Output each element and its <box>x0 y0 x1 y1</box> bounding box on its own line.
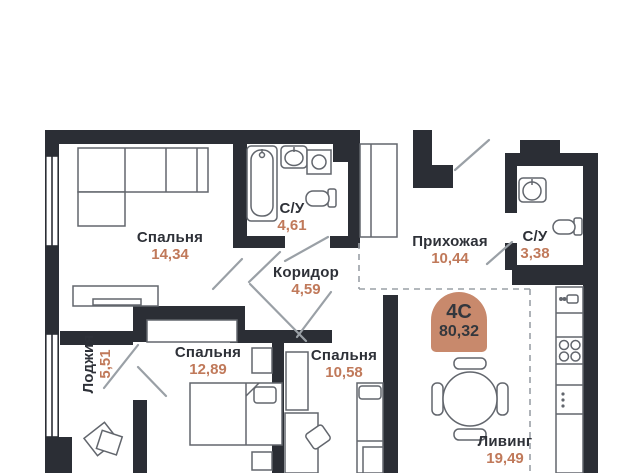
loggia-chair <box>84 422 122 455</box>
chair-top <box>454 358 486 369</box>
dresser <box>73 286 158 306</box>
kitchen-counter <box>556 287 583 473</box>
room-area: 14,34 <box>137 246 203 263</box>
room-area: 12,89 <box>175 361 241 378</box>
wall-top-notch <box>520 140 560 153</box>
label-living: Ливинг 19,49 <box>478 433 533 467</box>
room-area: 10,44 <box>412 250 488 267</box>
chair-right <box>497 383 508 415</box>
room-name: Лоджия <box>80 335 97 394</box>
label-bathroom-2: С/У 3,38 <box>520 228 549 262</box>
wall-loggia-right-b <box>133 400 147 473</box>
label-bedroom-3: Спальня 10,58 <box>311 347 377 381</box>
room-name: Ливинг <box>478 433 533 450</box>
wall-bedroom3-living <box>383 295 398 473</box>
door-entry <box>455 140 489 170</box>
wardrobe-bedroom2 <box>147 320 237 342</box>
wall-bathroom-right <box>348 130 360 237</box>
toilet-2 <box>553 218 582 235</box>
label-corridor: Коридор 4,59 <box>273 264 339 298</box>
double-bed <box>190 383 282 445</box>
room-name: Прихожая <box>412 233 488 250</box>
label-loggia: Лоджия 5,51 <box>80 335 114 394</box>
wall-bathroom2-left-a <box>505 153 517 213</box>
nightstand-bottom <box>252 452 272 470</box>
sink-2 <box>519 178 546 202</box>
floor-plan: Спальня 14,34 С/У 4,61 Прихожая 10,44 С/… <box>0 0 640 473</box>
room-name: С/У <box>520 228 549 245</box>
dining-table <box>432 358 508 440</box>
room-area: 3,38 <box>520 245 549 262</box>
door-loggia-leaf-b <box>138 367 166 396</box>
wall-bedroom1-bedroom2 <box>133 306 238 320</box>
washing-machine <box>307 150 331 174</box>
toilet <box>306 189 336 207</box>
corner-sofa <box>78 148 208 226</box>
wall-top <box>45 130 350 144</box>
room-name: С/У <box>277 200 306 217</box>
label-bedroom-1: Спальня 14,34 <box>137 229 203 263</box>
wall-bathroom-bottom-right <box>330 236 360 248</box>
wardrobe-bedroom3 <box>286 352 308 410</box>
label-bathroom-1: С/У 4,61 <box>277 200 306 234</box>
room-name: Спальня <box>137 229 203 246</box>
room-area: 10,58 <box>311 364 377 381</box>
room-area: 4,61 <box>277 217 306 234</box>
wardrobe-hallway <box>360 144 397 237</box>
room-area: 19,49 <box>478 450 533 467</box>
wall-bathroom-bottom-left <box>233 236 285 248</box>
nightstand-top <box>252 348 272 373</box>
wall-bedroom1-bathroom <box>233 144 247 240</box>
oven-dots-icon <box>561 392 564 407</box>
door-bathroom1 <box>285 237 328 261</box>
single-bed <box>357 383 383 473</box>
wall-left-c <box>45 437 72 473</box>
sink <box>281 146 307 168</box>
round-table <box>443 372 497 426</box>
wall-entry-horizontal <box>432 165 453 188</box>
apartment-type: 4С <box>431 301 487 323</box>
label-hallway: Прихожая 10,44 <box>412 233 488 267</box>
apartment-total-area: 80,32 <box>431 323 487 341</box>
apartment-type-badge: 4С 80,32 <box>431 292 487 352</box>
door-bedroom1-leaf <box>213 259 242 289</box>
chair-left <box>432 383 443 415</box>
room-area: 4,59 <box>273 281 339 298</box>
wall-bathroom-niche <box>333 144 348 162</box>
wall-left-b <box>45 246 59 334</box>
room-area: 5,51 <box>97 335 114 394</box>
wall-entry-vertical <box>413 130 432 188</box>
room-name: Спальня <box>175 344 241 361</box>
wall-left-a <box>45 130 59 156</box>
room-name: Спальня <box>311 347 377 364</box>
bathtub <box>247 146 277 221</box>
wall-right-exterior <box>583 153 598 473</box>
room-name: Коридор <box>273 264 339 281</box>
label-bedroom-2: Спальня 12,89 <box>175 344 241 378</box>
